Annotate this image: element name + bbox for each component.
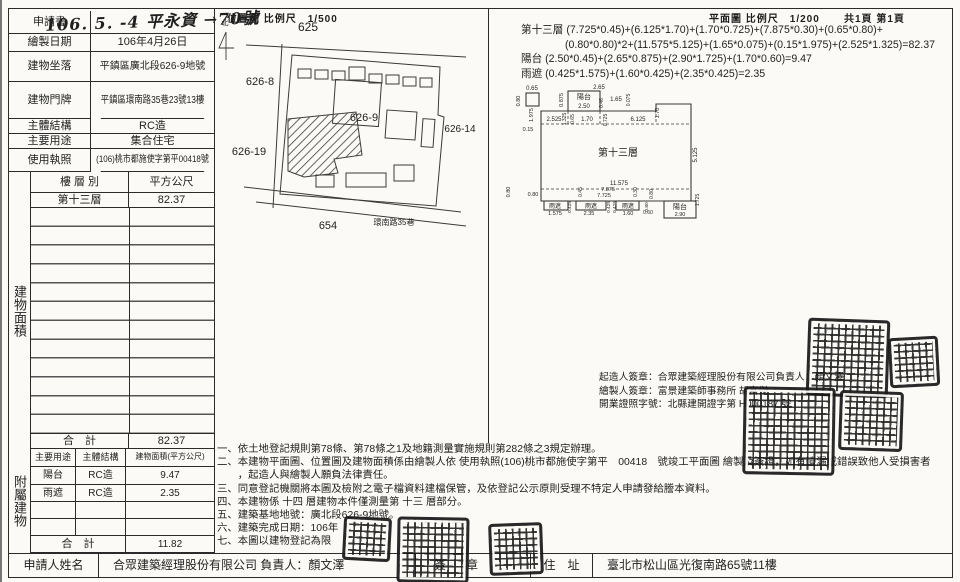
architect-seal-stamp bbox=[838, 390, 904, 452]
drawing-label: 626-14 bbox=[444, 124, 476, 135]
drawing-label: 0.60 bbox=[643, 210, 653, 216]
building-site-label: 建物坐落 bbox=[9, 52, 91, 82]
drawing-label: 0.80 bbox=[528, 192, 539, 198]
bottom-road-line bbox=[244, 187, 461, 212]
drawing-label: 0.65 bbox=[570, 114, 576, 124]
drawing-label: 0.80 bbox=[649, 189, 655, 199]
drawing-label: 1.325 bbox=[562, 113, 568, 126]
drawing-label: 0.80 bbox=[516, 96, 522, 107]
note-line: 四、本建物係 十四 層建物本件僅測量第 十三 層部分。 bbox=[217, 496, 952, 509]
top-road-line bbox=[246, 45, 466, 57]
drawing-label: 陽台 bbox=[577, 92, 591, 101]
drawing-label: 1.70 bbox=[581, 117, 593, 123]
drawing-label: 2.65 bbox=[593, 85, 605, 91]
drawing-label: 0.075 bbox=[626, 94, 632, 107]
signature-personal-seal-stamp bbox=[488, 522, 544, 576]
floor-total-label: 合 計 bbox=[31, 434, 129, 449]
note-line: 五、建築基地地號：廣北段626-9地號。 bbox=[217, 509, 952, 522]
drawing-label: 0.15 bbox=[523, 127, 534, 133]
floor-13-name: 第十三層 bbox=[31, 193, 129, 208]
building-site-value: 平鎮區廣北段626-9地號 bbox=[91, 52, 214, 82]
drawing-label: 1.725 bbox=[695, 194, 701, 207]
annex-empty-cell bbox=[126, 519, 214, 536]
empty-rows-divider bbox=[129, 208, 130, 434]
drawing-label: 626-9 bbox=[350, 112, 378, 124]
scan-edge-artifact bbox=[0, 0, 2, 582]
calc-line: 陽台 (2.50*0.45)+(2.65*0.875)+(2.90*1.725)… bbox=[521, 52, 953, 67]
personal-seal-stamp bbox=[888, 336, 941, 389]
annex-balcony-use: 陽台 bbox=[31, 467, 76, 485]
corner-box-outline bbox=[526, 93, 539, 106]
drawing-label: 北 bbox=[222, 19, 229, 27]
drawing-label: 2.525 bbox=[546, 117, 562, 123]
drawing-label: 雨遮 bbox=[585, 202, 597, 210]
drawing-label: 環南路35巷 bbox=[374, 217, 415, 227]
annex-empty-cell bbox=[76, 502, 126, 519]
drawing-label: 0.80 bbox=[506, 187, 512, 198]
area-calculation-block: 第十三層 (7.725*0.45)+(6.125*1.70)+(1.70*0.7… bbox=[521, 23, 953, 81]
structure-value: RC造 bbox=[91, 119, 214, 134]
building-address-label: 建物門牌 bbox=[9, 82, 91, 119]
drawing-label: 2.50 bbox=[578, 104, 590, 110]
drawing-label: 1.60 bbox=[623, 211, 634, 217]
annex-empty-cell bbox=[76, 519, 126, 536]
annex-side-label: 附屬建物 bbox=[9, 449, 31, 553]
drawing-label: 7.725 bbox=[597, 193, 611, 199]
annex-struct-header: 主體結構 bbox=[76, 449, 126, 467]
floor-column-header: 樓 層 別 bbox=[31, 172, 129, 193]
drawing-label: 0.46 bbox=[599, 98, 605, 108]
survey-document-page: 申請書 106. 5. -4 平永資 →70號 繪製日期 106年4月26日 建… bbox=[0, 0, 960, 582]
annex-empty-cell bbox=[31, 519, 76, 536]
annex-canopy-area: 2.35 bbox=[126, 485, 214, 502]
north-arrow bbox=[219, 32, 234, 60]
drawing-label: 陽台 bbox=[673, 202, 687, 211]
drawing-label: 1.975 bbox=[529, 108, 535, 122]
drawing-label: 0.425 bbox=[612, 201, 618, 213]
annex-canopy-use: 雨遮 bbox=[31, 485, 76, 502]
drawing-label: 654 bbox=[319, 220, 337, 232]
architect-office-seal-stamp bbox=[742, 386, 836, 476]
note-line: ，起造人與繪製人願負法律責任。 bbox=[217, 469, 952, 482]
annex-balcony-struct: RC造 bbox=[76, 467, 126, 485]
empty-floor-rows bbox=[31, 208, 214, 434]
floorplan-drawing: 2.65陽台2.500.8750.461.650.0751.700.650.80… bbox=[506, 81, 762, 227]
left-table-divider bbox=[214, 9, 215, 553]
drawing-date-value: 106年4月26日 bbox=[91, 34, 214, 52]
drawing-label: 0.425 bbox=[606, 201, 612, 213]
address-value: 臺北市松山區光復南路65號11樓 bbox=[593, 553, 952, 577]
drawing-label: 6.125 bbox=[630, 117, 646, 123]
floor-total-value: 82.37 bbox=[129, 434, 214, 449]
note-line: 三、同意登記機關將本圖及檢附之電子檔資料建檔保管，及依登記公示原則受理不特定人申… bbox=[217, 483, 952, 496]
drawing-label: 0.30 bbox=[633, 187, 639, 197]
drawing-label: 2.90 bbox=[675, 212, 686, 218]
drawing-label: 0.425 bbox=[567, 201, 573, 213]
application-number-cell: 106. 5. -4 平永資 →70號 bbox=[91, 11, 214, 34]
siteplan-drawing: 北625626-8626-9626-14626-19654環南路35巷 bbox=[216, 15, 484, 243]
drawing-label: 2.35 bbox=[584, 211, 595, 217]
annex-empty-cell bbox=[31, 502, 76, 519]
drawing-label: 0.875 bbox=[559, 93, 565, 107]
annex-total-value: 11.82 bbox=[126, 536, 214, 553]
annex-use-header: 主要用途 bbox=[31, 449, 76, 467]
siteplan-floorplan-divider bbox=[488, 9, 489, 443]
calc-line: (0.80*0.80)*2+(11.575*5.125)+(1.65*0.075… bbox=[521, 38, 953, 53]
note-overlap-seal-stamp bbox=[342, 516, 392, 562]
annex-area-header: 建物面積(平方公尺) bbox=[126, 449, 214, 467]
drawing-label: 0.45 bbox=[578, 187, 584, 197]
area-column-header: 平方公尺 bbox=[129, 172, 214, 193]
calc-line: 雨遮 (0.425*1.575)+(1.60*0.425)+(2.35*0.42… bbox=[521, 67, 953, 82]
drawing-label: 5.125 bbox=[693, 147, 699, 163]
drawing-label: 0.725 bbox=[603, 114, 609, 127]
license-value: (106)桃市都施使字第平00418號 bbox=[101, 149, 204, 172]
license-label: 使用執照 bbox=[9, 149, 91, 172]
usage-label: 主要用途 bbox=[9, 134, 91, 149]
annex-empty-cell bbox=[126, 502, 214, 519]
annex-canopy-struct: RC造 bbox=[76, 485, 126, 502]
drawing-label: 626-19 bbox=[232, 146, 266, 158]
applicant-name-label: 申請人姓名 bbox=[9, 553, 99, 577]
floor-area-side-label: 建物面積 bbox=[9, 172, 31, 449]
drawing-date-label: 繪製日期 bbox=[9, 34, 91, 52]
company-seal-stamp bbox=[806, 318, 891, 399]
drawing-label: 雨遮 bbox=[549, 202, 561, 210]
calc-line: 第十三層 (7.725*0.45)+(6.125*1.70)+(1.70*0.7… bbox=[521, 23, 953, 38]
drawing-label: 625 bbox=[298, 20, 318, 34]
note-line: 六、建築完成日期：106年 bbox=[217, 522, 952, 535]
drawing-label: 1.65 bbox=[610, 97, 622, 103]
notes-block: 一、依土地登記規則第78條、第78條之1及地籍測量實施規則第282條之3規定辦理… bbox=[217, 443, 952, 549]
drawing-label: 626-8 bbox=[246, 76, 274, 88]
building-address-value: 平鎮區環南路35巷23號13樓 bbox=[101, 82, 204, 119]
drawing-label: 第十三層 bbox=[598, 146, 638, 159]
floor-13-area: 82.37 bbox=[129, 193, 214, 208]
drawing-label: 1.575 bbox=[548, 211, 562, 217]
document-frame: 申請書 106. 5. -4 平永資 →70號 繪製日期 106年4月26日 建… bbox=[8, 8, 953, 578]
note-line: 二、本建物平面圖、位置圖及建物面積係由繪製人依 使用執照(106)桃市都施使字第… bbox=[217, 456, 952, 469]
structure-label: 主體結構 bbox=[9, 119, 91, 134]
signature-company-seal-stamp bbox=[396, 516, 469, 582]
drawing-label: 1.70 bbox=[655, 108, 661, 119]
annex-balcony-area: 9.47 bbox=[126, 467, 214, 485]
usage-value: 集合住宅 bbox=[91, 134, 214, 149]
drawing-label: 0.65 bbox=[526, 86, 538, 92]
note-line: 七、本圖以建物登記為限 bbox=[217, 535, 952, 548]
drawing-label: 雨遮 bbox=[622, 202, 634, 210]
annex-total-label: 合 計 bbox=[31, 536, 126, 553]
